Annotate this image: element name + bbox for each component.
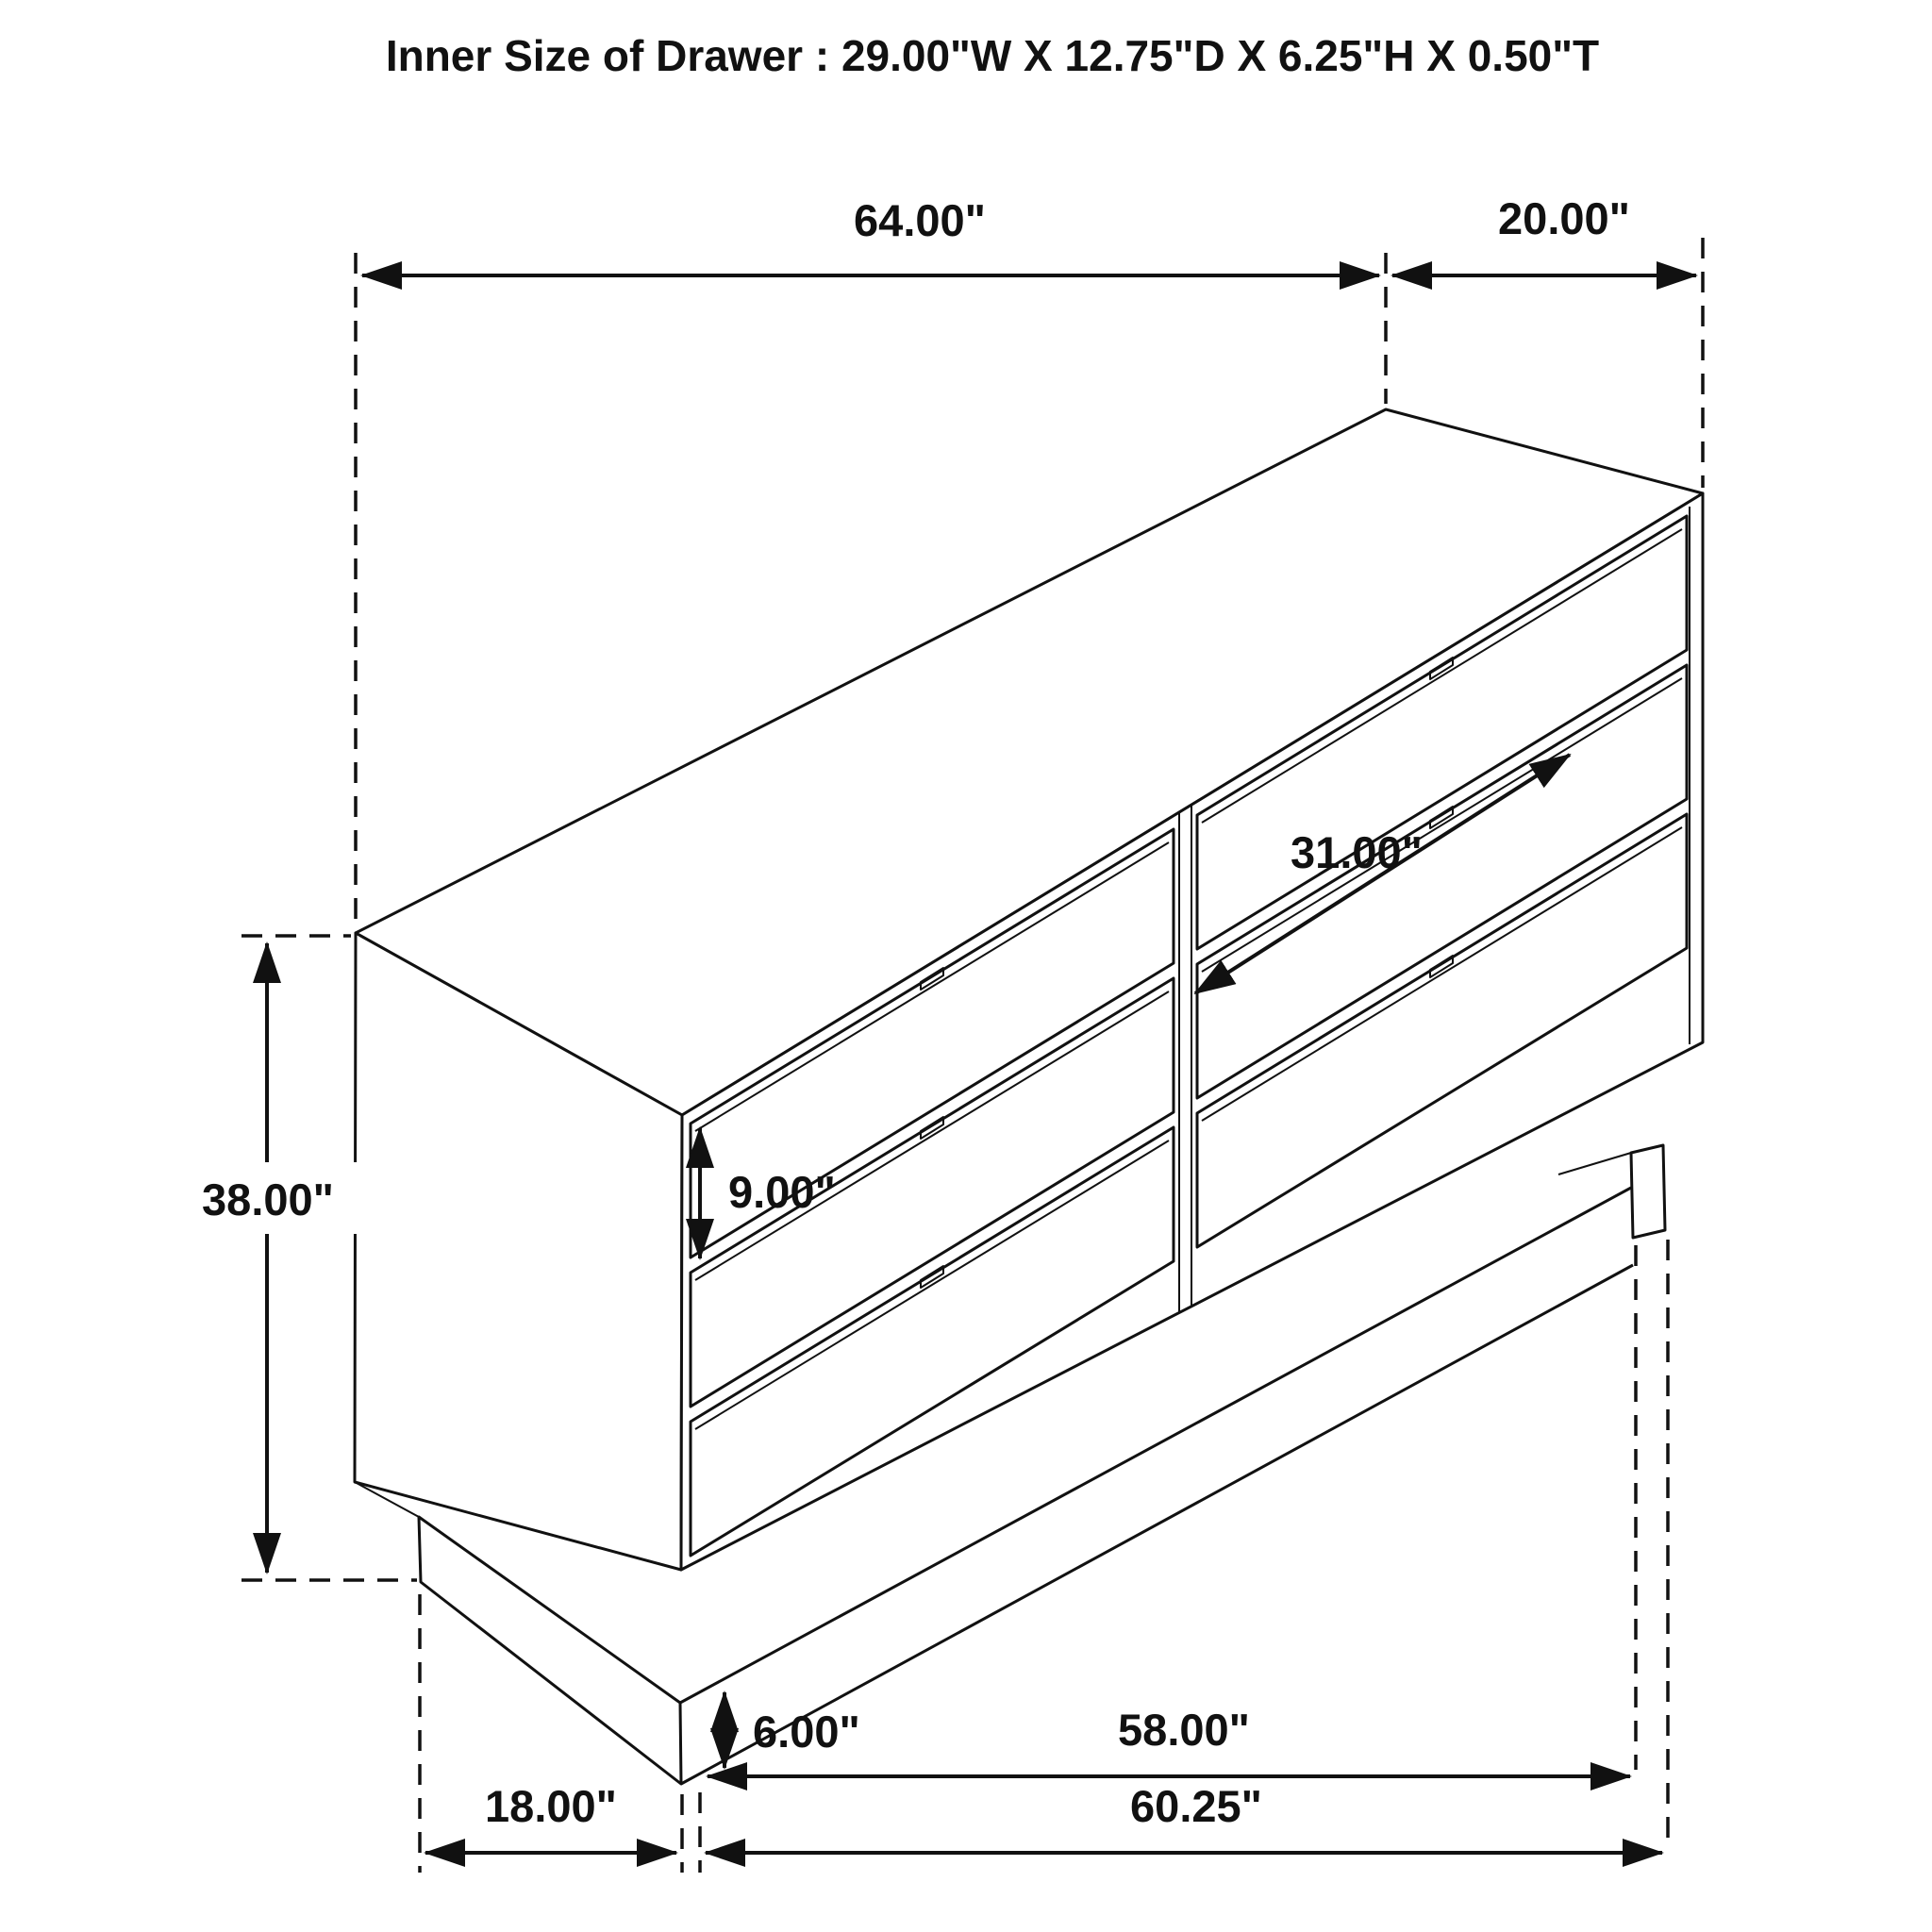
dimension-drawing: Inner Size of Drawer : 29.00"W X 12.75"D… <box>0 0 1932 1932</box>
right-front-leg <box>1631 1145 1665 1238</box>
diagram-page: Inner Size of Drawer : 29.00"W X 12.75"D… <box>0 0 1932 1932</box>
dresser <box>355 409 1703 1784</box>
dim-base-height-label: 6.00" <box>753 1707 860 1757</box>
dim-drawer-height-label: 9.00" <box>728 1167 836 1217</box>
dim-base-depth-label: 18.00" <box>485 1781 617 1831</box>
dim-drawer-width-label: 31.00" <box>1291 827 1423 877</box>
base-right-receding-edge <box>1558 1153 1631 1174</box>
dim-base-width-label: 60.25" <box>1130 1781 1262 1831</box>
dim-top-width-label: 64.00" <box>854 195 986 245</box>
dim-top-depth-label: 20.00" <box>1498 193 1630 243</box>
dim-height-label: 38.00" <box>202 1174 334 1224</box>
dim-base-inner-label: 58.00" <box>1118 1705 1250 1755</box>
page-title: Inner Size of Drawer : 29.00"W X 12.75"D… <box>386 31 1599 80</box>
